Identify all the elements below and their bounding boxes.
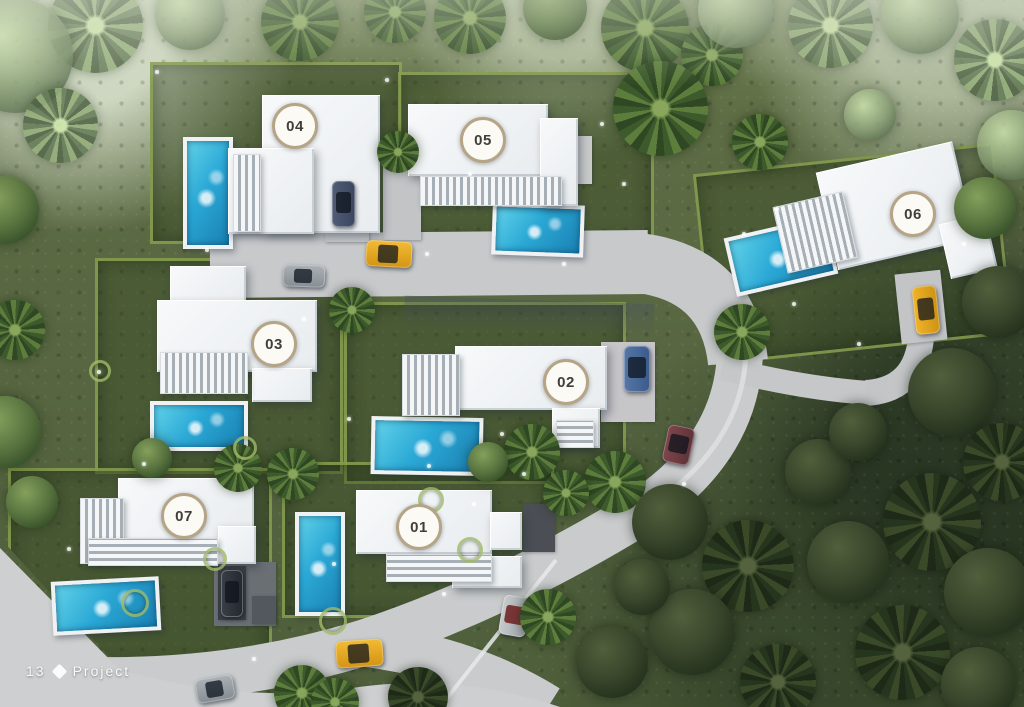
villa-04-pergola <box>233 154 261 232</box>
car-yellow-villa-06 <box>912 285 941 335</box>
footer-project-label: Project <box>73 663 131 679</box>
garden-light <box>742 232 746 236</box>
garden-light <box>442 592 446 596</box>
garden-light <box>347 417 351 421</box>
hedge-swirl <box>233 436 257 460</box>
car-glass <box>504 604 525 625</box>
garden-light <box>205 248 209 252</box>
footer: 13 Project <box>26 663 130 679</box>
garden-light <box>962 242 966 246</box>
garden-light <box>775 207 779 211</box>
footer-page-number: 13 <box>26 663 46 679</box>
garden-light <box>522 472 526 476</box>
villa-number: 03 <box>265 336 283 353</box>
footer-logo-mark <box>51 663 67 679</box>
hedge-swirl <box>121 589 149 617</box>
garden-light <box>468 172 472 176</box>
villa-03-pergola <box>160 352 248 394</box>
garden-light <box>142 462 146 466</box>
garden-light <box>252 657 256 661</box>
pool-villa-05 <box>491 202 585 257</box>
villa-badge-01[interactable]: 01 <box>396 504 442 550</box>
garden-light <box>500 432 504 436</box>
garden-light <box>792 302 796 306</box>
car-glass <box>348 644 370 664</box>
garden-light <box>600 122 604 126</box>
garden-light <box>562 262 566 266</box>
pool-water <box>187 141 229 245</box>
garden-light <box>857 342 861 346</box>
villa-badge-02[interactable]: 02 <box>543 359 589 405</box>
car-glass <box>336 192 352 213</box>
villa-03-wing <box>252 368 312 402</box>
villa-07-deck-pergola <box>88 538 218 566</box>
garden-light <box>155 70 159 74</box>
villa-01-wing <box>490 512 522 550</box>
hedge-swirl <box>319 607 347 635</box>
villa-05-pergola <box>420 176 562 206</box>
garden-light <box>67 547 71 551</box>
garage-villa-01 <box>523 504 555 552</box>
pool-water <box>154 405 244 447</box>
villa-badge-06[interactable]: 06 <box>890 191 936 237</box>
car-black-villa-07 <box>221 570 243 617</box>
car-gray-main-road <box>283 264 326 287</box>
villa-badge-03[interactable]: 03 <box>251 321 297 367</box>
villa-06-terrace <box>939 214 998 279</box>
villa-number: 01 <box>410 519 428 536</box>
villa-number: 02 <box>557 374 575 391</box>
villa-badge-07[interactable]: 07 <box>161 493 207 539</box>
villa-number: 06 <box>904 206 922 223</box>
car-gold-bottom-road <box>335 638 384 668</box>
villa-02-deck-pergola <box>556 420 594 448</box>
car-glass <box>225 581 240 603</box>
garden-light <box>682 482 686 486</box>
car-glass <box>294 268 313 284</box>
car-navy-villa-04 <box>332 181 355 227</box>
garden-light <box>97 370 101 374</box>
garden-light <box>332 562 336 566</box>
garden-light <box>425 252 429 256</box>
villa-badge-05[interactable]: 05 <box>460 117 506 163</box>
garden-light <box>427 464 431 468</box>
car-glass <box>628 357 646 378</box>
villa-number: 04 <box>286 118 304 135</box>
pool-villa-04 <box>183 137 233 249</box>
garden-light <box>385 78 389 82</box>
villa-badge-04[interactable]: 04 <box>272 103 318 149</box>
pool-villa-01 <box>295 512 345 616</box>
villa-number: 05 <box>474 132 492 149</box>
garden-light <box>472 502 476 506</box>
pad-villa-07-side <box>252 596 276 624</box>
garden-light <box>302 317 306 321</box>
car-glass <box>378 245 399 264</box>
car-glass <box>668 433 690 454</box>
road-main <box>210 262 648 266</box>
villa-02-pergola <box>402 354 460 416</box>
car-blue-villa-02 <box>624 346 650 392</box>
hedge-swirl <box>203 547 227 571</box>
site-plan-scene: 01 02 03 04 05 06 07 13 Project <box>0 0 1024 707</box>
hedge-swirl <box>457 537 483 563</box>
car-gold-main-road <box>365 240 412 268</box>
car-glass <box>917 297 936 321</box>
pool-water <box>495 207 580 254</box>
car-glass <box>205 680 224 699</box>
villa-number: 07 <box>175 508 193 525</box>
garden-light <box>622 182 626 186</box>
